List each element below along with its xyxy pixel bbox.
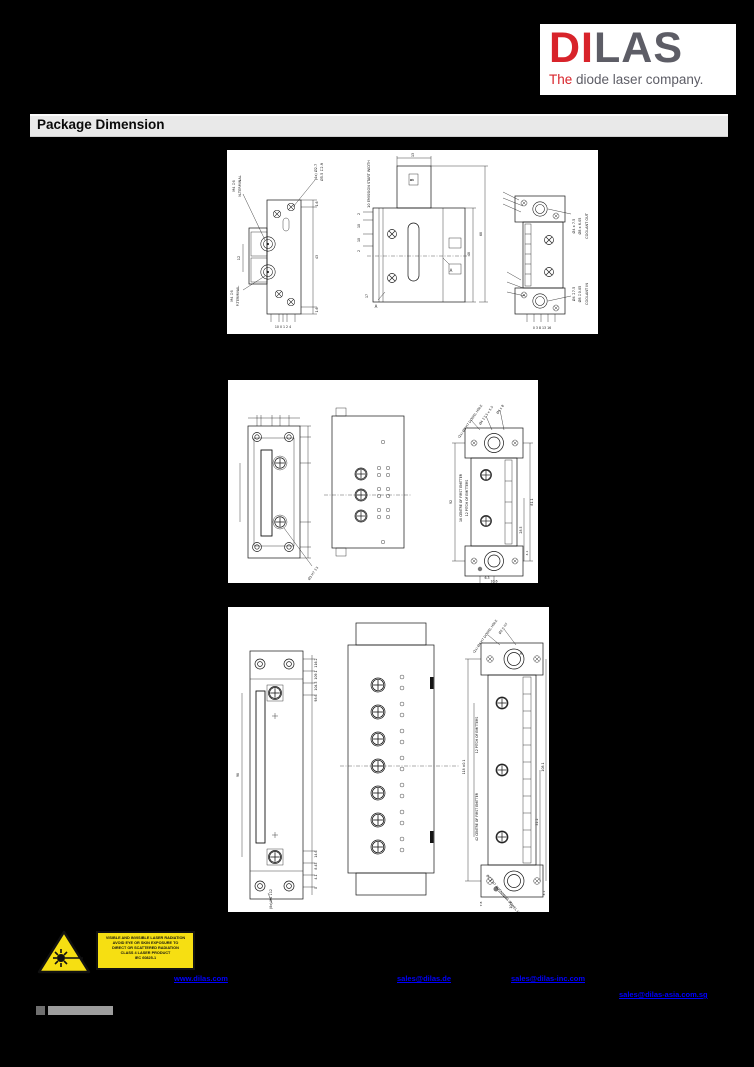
dim-label: 12 PITCH OF EMITTERS	[465, 480, 469, 516]
dim-label: 12	[237, 256, 241, 260]
dim-label: Ø8 ↧0.05	[577, 286, 582, 303]
dim-label: 1.6	[315, 201, 319, 206]
dim-label: 0 3 8 13 16	[533, 326, 551, 330]
dim-label: 109.1	[314, 670, 318, 679]
dim-label: 2	[357, 250, 361, 252]
dim-label: 4.1	[525, 551, 529, 556]
dim-label: 12 PITCH OF EMITTERS	[475, 717, 479, 753]
dim-label: Ø8 x 6.05	[577, 217, 582, 234]
view-front: Ø3 H7 ↧3	[240, 415, 319, 581]
warning-line: IEC 60825-1	[98, 956, 193, 961]
package-drawing-bottom: 116.2 109.1 104.5 98.6 14.6 8.45 4.1 0 9…	[228, 607, 549, 912]
laser-warning-label: VISIBLE AND INVISIBLE LASER RADIATION AV…	[96, 931, 195, 970]
dim-label: M4 ↧6	[230, 290, 234, 302]
laser-warning-triangle	[36, 929, 92, 975]
view-front: M4 ↧6 N-TERMINAL M4 ↧6 P-TERMINAL (4x) Ø…	[230, 163, 324, 329]
dim-label: P-TERMINAL	[236, 286, 240, 307]
dim-label: 81.1	[530, 498, 534, 505]
dim-label: 8.45	[314, 862, 318, 869]
view-side-coolant: 0 3 8 13 16 Ø4 x 7.5 Ø8 x 6.05 COOLANT O…	[503, 192, 589, 330]
dim-label: 4.1	[314, 874, 318, 879]
dim-label: 13	[411, 153, 415, 157]
view-side	[340, 623, 460, 895]
footer-mark-bar	[48, 1006, 113, 1015]
laser-hazard-icon	[36, 929, 92, 975]
dim-label: Ø4 x 7.5	[571, 219, 576, 234]
dim-label: M4 ↧6	[232, 180, 236, 192]
logo-las: LAS	[594, 24, 683, 72]
dim-label: Ø4 ↧7.5	[571, 287, 576, 302]
dim-label: 104.5	[314, 681, 318, 690]
dim-label: 10	[357, 224, 361, 228]
dim-label: 18 CENTRE OF FIRST EMITTER	[459, 473, 463, 522]
view-end: 92 18 CENTRE OF FIRST EMITTER 12 PITCH O…	[449, 403, 534, 583]
dim-label: (2x) Ø4 H7 DOWEL HOLE	[471, 618, 498, 654]
coolant-in-label: COOLANT IN	[585, 283, 589, 305]
dilas-logo: DILAS The diode laser company.	[540, 24, 736, 95]
dim-label: 116.2	[314, 658, 318, 667]
logo-di: DI	[549, 24, 594, 72]
view-front: 116.2 109.1 104.5 98.6 14.6 8.45 4.1 0 9…	[236, 651, 318, 909]
drawing-panel-3: 116.2 109.1 104.5 98.6 14.6 8.45 4.1 0 9…	[228, 607, 549, 912]
dim-label: 43	[315, 255, 319, 259]
section-marker: A	[450, 268, 453, 273]
dim-label: Ø5.5 ↧2.9	[319, 163, 324, 181]
package-drawing-top: M4 ↧6 N-TERMINAL M4 ↧6 P-TERMINAL (4x) Ø…	[227, 150, 598, 334]
logo-wordmark: DILAS	[549, 26, 736, 70]
link-email-de[interactable]: sales@dilas.de	[397, 974, 451, 983]
logo-tagline: The diode laser company.	[549, 72, 736, 87]
dim-label: 17	[365, 294, 369, 298]
dim-label: 28.5	[519, 526, 523, 533]
dim-label: 6.3	[484, 576, 489, 580]
section-title-bar: Package Dimension	[30, 114, 728, 137]
dim-label: 98	[236, 773, 240, 777]
dim-label: 2	[357, 213, 361, 215]
section-marker: A	[375, 304, 378, 309]
section-marker: B	[410, 178, 415, 181]
view-end: A 118 ±0.1 12 PITCH OF EMITTERS 42 CENTR…	[462, 618, 546, 912]
section-marker: A	[520, 651, 523, 656]
dim-label: 14.6	[314, 850, 318, 857]
dim-label: 68	[479, 232, 483, 236]
dim-label: Ø4 x 8	[495, 403, 505, 414]
dim-label: 48	[467, 252, 471, 256]
page: { "logo": { "part1": "DI", "part2": "LAS…	[0, 0, 754, 1067]
link-website[interactable]: www.dilas.com	[174, 974, 228, 983]
dim-label: 118 ±0.1	[462, 760, 466, 775]
dim-label: 7.8	[479, 902, 483, 907]
dim-label: 42 CENTRE OF FIRST EMITTER	[475, 792, 479, 841]
coolant-out-label: COOLANT OUT	[585, 212, 589, 239]
dim-label: 98.6	[314, 694, 318, 701]
dim-label: (4x) Ø2.7	[313, 164, 318, 180]
dim-label: 0	[314, 887, 318, 889]
page-title: Package Dimension	[37, 117, 165, 132]
dim-label: 10 EMISSION START WIDTH	[367, 160, 371, 208]
dim-label: (8x) M4 ↧12	[269, 889, 273, 909]
dim-label: Ø2.5 H7 ALIGNMENT DOWEL HOLE	[485, 873, 525, 912]
view-side	[324, 408, 412, 556]
dim-label: 108.1	[541, 762, 545, 771]
link-email-inc[interactable]: sales@dilas-inc.com	[511, 974, 585, 983]
dim-label: N-TERMINAL	[238, 175, 242, 196]
dim-label: 10	[357, 238, 361, 242]
footer-mark-square	[36, 1006, 45, 1015]
drawing-panel-1: M4 ↧6 N-TERMINAL M4 ↧6 P-TERMINAL (4x) Ø…	[227, 150, 598, 334]
drawing-panel-2: Ø3 H7 ↧3 92	[228, 380, 538, 583]
dim-label: 4.1	[542, 891, 546, 896]
dim-label: 52.2	[535, 818, 539, 825]
package-drawing-middle: Ø3 H7 ↧3 92	[228, 380, 538, 583]
dim-label: 10.6	[490, 580, 497, 584]
dim-label: Ø3 H7 ↧3	[306, 565, 319, 581]
dim-label: 92	[449, 500, 453, 504]
dim-label: 10 0 1 2 4	[275, 325, 291, 329]
view-section: 10 EMISSION START WIDTH 13 B A A 17 2 10…	[357, 153, 488, 309]
dim-label: 1.6	[315, 307, 319, 312]
link-email-asia[interactable]: sales@dilas-asia.com.sg	[619, 990, 708, 999]
